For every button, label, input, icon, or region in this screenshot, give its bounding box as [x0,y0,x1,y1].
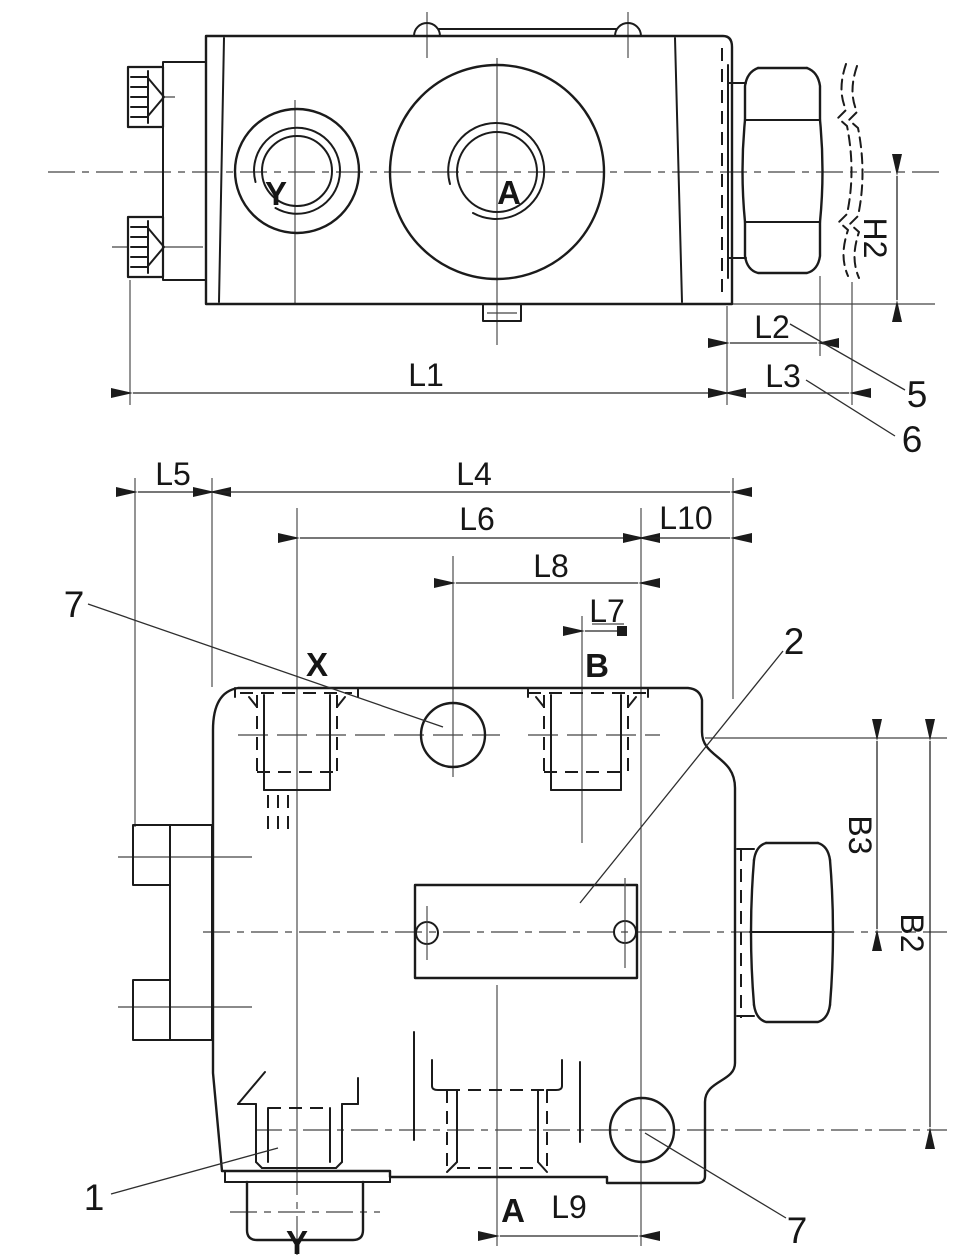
callout-7-top: 7 [64,584,85,625]
dim-label-l5: L5 [155,456,191,492]
dim-label-l1: L1 [408,357,444,393]
callout-6: 6 [902,419,923,460]
socket-screw-lower [128,217,164,277]
port-b-boss [528,688,648,790]
dim-label-l7: L7 [589,593,625,629]
dim-label-l6: L6 [459,501,495,537]
dim-label-l4: L4 [456,456,492,492]
valve-body-top-view [206,36,732,304]
port-label-y-top: Y [265,175,287,212]
callout-2: 2 [784,621,805,662]
body-right-chamfer-line [675,38,682,302]
technical-drawing-page: Y A H2 L2 L1 L3 5 6 [0,0,971,1255]
callout-6-leader [806,380,895,436]
socket-screw-upper [128,67,164,127]
callout-1: 1 [84,1177,105,1218]
name-plate [415,878,637,978]
dim-label-l8: L8 [533,548,569,584]
port-label-x: X [306,646,328,683]
port-label-b: B [585,647,609,684]
valve-drawing-svg: Y A H2 L2 L1 L3 5 6 [0,0,971,1255]
callout-7-top-leader [88,604,443,727]
callout-5: 5 [907,374,928,415]
dim-label-b3: B3 [842,815,878,854]
port-label-y-bottom: Y [286,1224,308,1255]
hex-nut-front-view [750,843,834,1022]
front-view: L5 L4 L6 L10 L8 L7 7 X B 2 B3 B2 1 A L9 … [64,456,947,1255]
port-label-a-bottom: A [501,1192,525,1229]
callout-7-bottom-leader [645,1133,786,1218]
dim-label-h2: H2 [857,218,893,259]
body-left-chamfer-line [219,38,224,302]
dim-label-l2: L2 [754,309,790,345]
dim-label-b2: B2 [894,913,930,952]
dim-label-l9: L9 [551,1189,587,1225]
port-y-top-view [235,109,359,233]
top-view: Y A H2 L2 L1 L3 5 6 [48,12,940,460]
port-label-a-top: A [497,174,521,211]
callout-7-bottom: 7 [787,1210,808,1251]
dim-label-l3: L3 [765,358,801,394]
hex-nut-top-view [743,68,823,273]
dim-label-l10: L10 [659,500,712,536]
